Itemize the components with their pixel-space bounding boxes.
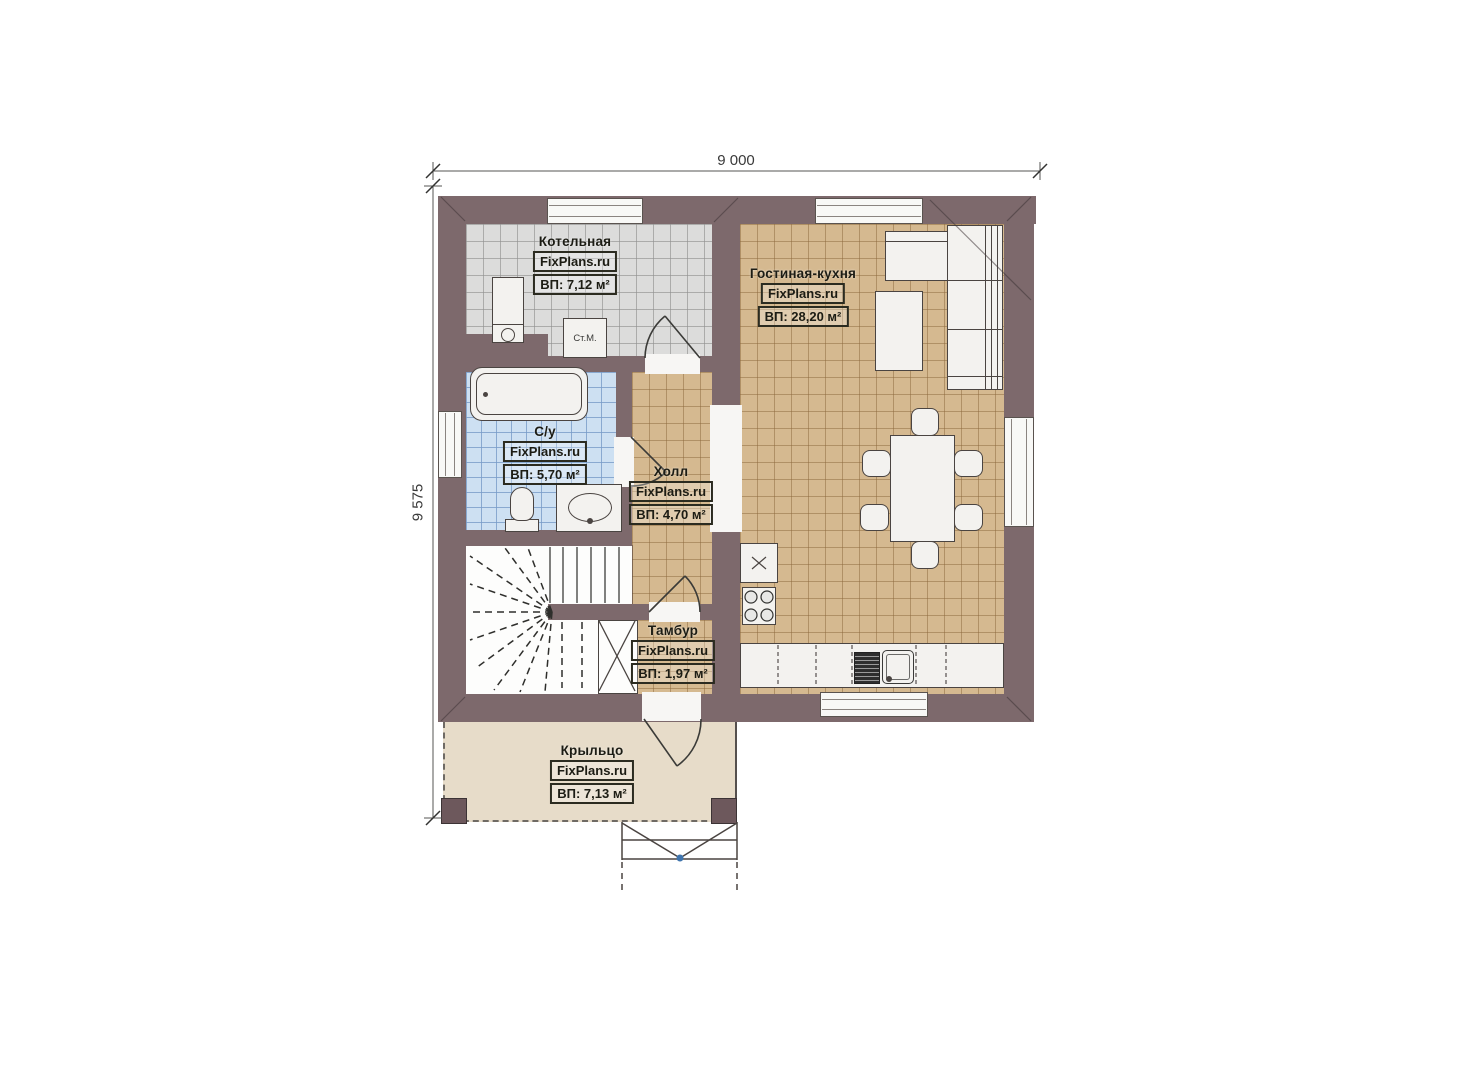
boiler-unit-line <box>493 324 523 325</box>
porch-post <box>441 798 467 824</box>
room-label-hall: Холл FixPlans.ru ВП: 4,70 м² <box>629 464 713 525</box>
sofa-cushion-line <box>948 376 1002 377</box>
window-right-living <box>1004 417 1034 527</box>
room-watermark: FixPlans.ru <box>761 283 845 304</box>
dimension-height-label: 9 575 <box>410 473 427 533</box>
dish-drainer <box>854 652 880 684</box>
boiler-unit <box>492 277 524 343</box>
room-label-boiler: Котельная FixPlans.ru ВП: 7,12 м² <box>533 234 617 295</box>
room-watermark: FixPlans.ru <box>503 441 587 462</box>
boiler-dial-icon <box>501 328 515 342</box>
sofa-back-line <box>985 226 986 389</box>
room-label-porch: Крыльцо FixPlans.ru ВП: 7,13 м² <box>550 743 634 804</box>
room-watermark: FixPlans.ru <box>533 251 617 272</box>
sofa-cushion-line <box>948 280 1002 281</box>
inner-wall-bathroom-bottom <box>466 530 632 546</box>
dining-table <box>890 435 955 542</box>
floor-plan-sheet: Ст.М. <box>0 0 1473 1080</box>
room-watermark: FixPlans.ru <box>629 481 713 502</box>
bathtub-drain-icon <box>483 392 488 397</box>
coffee-table <box>875 291 923 371</box>
handle-dot <box>677 855 684 862</box>
sink-faucet-icon <box>587 518 593 524</box>
room-area: ВП: 1,97 м² <box>631 663 715 684</box>
porch-steps <box>622 822 737 893</box>
sofa-vertical <box>947 225 1003 390</box>
window-left-bathroom <box>438 411 462 478</box>
bathroom-vanity <box>556 484 622 532</box>
room-name: Крыльцо <box>561 743 624 758</box>
dining-chair <box>911 541 939 569</box>
room-watermark: FixPlans.ru <box>550 760 634 781</box>
bathtub <box>470 367 588 421</box>
room-watermark: FixPlans.ru <box>631 640 715 661</box>
room-name: Холл <box>654 464 689 479</box>
dining-chair <box>954 450 983 477</box>
room-label-vestibule: Тамбур FixPlans.ru ВП: 1,97 м² <box>631 623 715 684</box>
room-name: Тамбур <box>648 623 698 638</box>
stove <box>742 587 776 625</box>
bathtub-inner <box>476 373 582 415</box>
room-name: Котельная <box>539 234 611 249</box>
doorway-vestibule <box>649 602 700 622</box>
room-name: С/у <box>534 424 556 439</box>
porch-post <box>711 798 737 824</box>
dining-chair <box>954 504 983 531</box>
sofa-back-line <box>991 226 992 389</box>
sofa-cushion-line <box>948 329 1002 330</box>
window-top-living <box>815 198 923 224</box>
dimension-width-label: 9 000 <box>696 152 776 169</box>
dining-chair <box>860 504 889 531</box>
washing-machine: Ст.М. <box>563 318 607 358</box>
room-area: ВП: 7,12 м² <box>533 274 617 295</box>
sofa-back-line <box>997 226 998 389</box>
dining-chair <box>862 450 891 477</box>
room-area: ВП: 5,70 м² <box>503 464 587 485</box>
doorway-boiler <box>645 354 700 374</box>
kitchen-faucet-icon <box>886 676 892 682</box>
room-area: ВП: 28,20 м² <box>758 306 849 327</box>
toilet-bowl <box>510 487 534 521</box>
room-area: ВП: 7,13 м² <box>550 783 634 804</box>
washing-machine-label: Ст.М. <box>564 319 606 357</box>
window-bottom-kitchen <box>820 692 928 717</box>
dining-chair <box>911 408 939 436</box>
kitchen-cabinet-x <box>740 543 778 583</box>
room-name: Гостиная-кухня <box>750 266 856 281</box>
room-label-living-kitchen: Гостиная-кухня FixPlans.ru ВП: 28,20 м² <box>750 266 856 327</box>
doorway-entry <box>642 692 701 721</box>
window-top-boiler <box>547 198 643 224</box>
room-area: ВП: 4,70 м² <box>629 504 713 525</box>
room-label-bathroom: С/у FixPlans.ru ВП: 5,70 м² <box>503 424 587 485</box>
opening-hall-living <box>710 405 742 532</box>
